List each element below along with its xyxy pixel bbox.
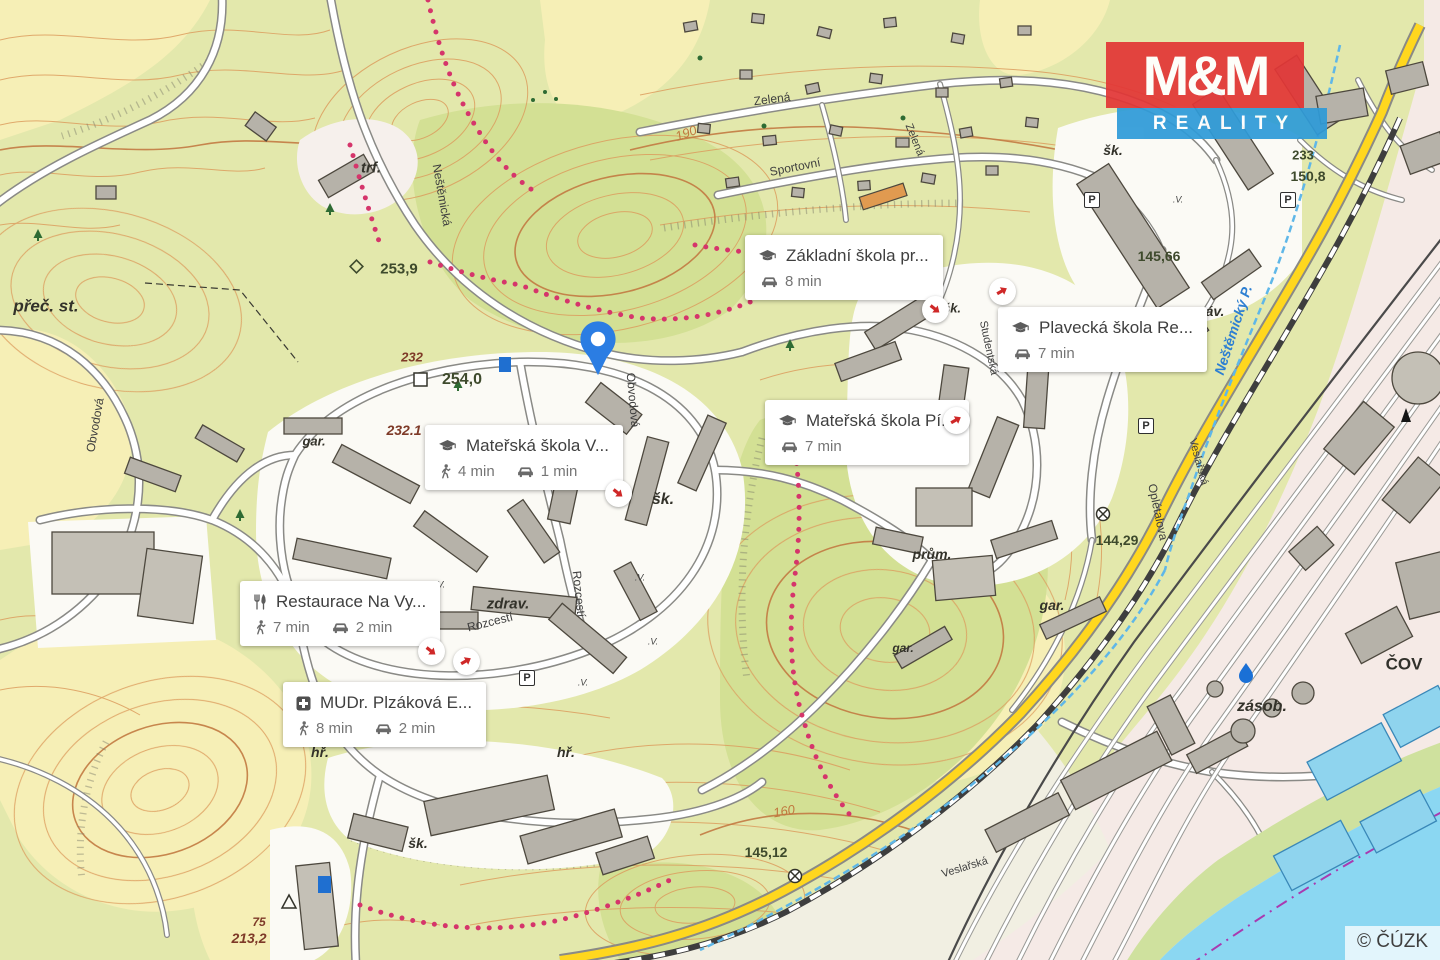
map-screenshot: přeč. st.trf.253,9232254,0232.1gar.zdrav… bbox=[0, 0, 1440, 960]
route-arrow-icon[interactable] bbox=[922, 296, 949, 323]
route-arrow-icon[interactable] bbox=[605, 480, 632, 507]
map-attribution: © ČÚZK bbox=[1345, 926, 1440, 960]
route-arrow-icon[interactable] bbox=[418, 638, 445, 665]
route-arrow-icon[interactable] bbox=[943, 407, 970, 434]
logo-reality-text: REALITY bbox=[1117, 108, 1327, 139]
logo-mm-text: M&M bbox=[1106, 42, 1304, 108]
mm-reality-logo: M&M REALITY bbox=[1106, 42, 1327, 139]
route-arrow-layer bbox=[0, 0, 1440, 960]
route-arrow-icon[interactable] bbox=[989, 278, 1016, 305]
route-arrow-icon[interactable] bbox=[453, 648, 480, 675]
